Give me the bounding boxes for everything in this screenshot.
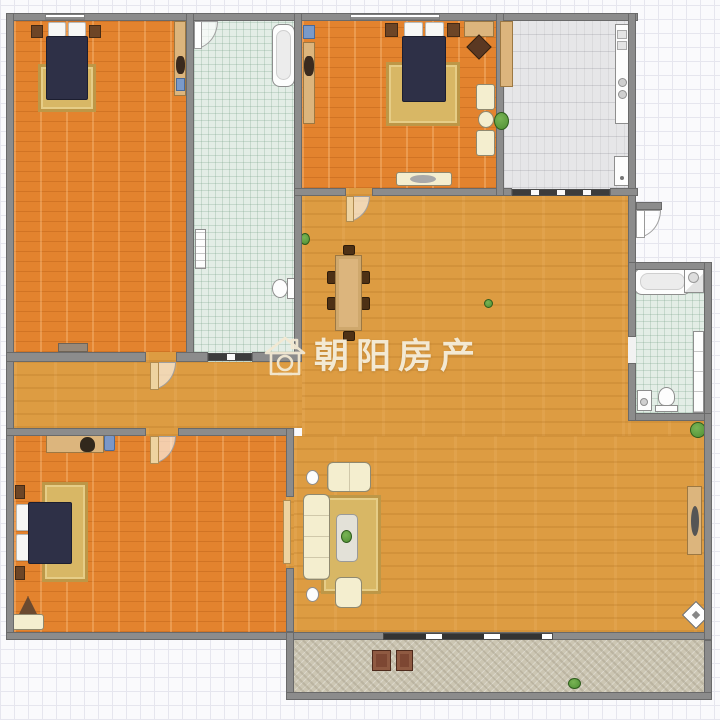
door-leaf-bedroom3-living [283, 500, 291, 564]
pillow-bedroom2-a [404, 22, 423, 37]
room-kitchen [504, 21, 628, 188]
desk-bedroom3 [46, 433, 104, 453]
nightstand-bedroom3-b [15, 566, 25, 580]
balcony-chair-a [372, 650, 391, 671]
door-leaf-bedroom2 [346, 196, 354, 222]
wall-balcony-right [704, 640, 712, 700]
room-balcony [294, 640, 704, 692]
wall-outer-top [6, 13, 638, 21]
dining-table [335, 255, 362, 331]
bag-bedroom2 [304, 56, 314, 76]
side-table-bedroom2 [478, 111, 494, 128]
wall-bedroom2-bottom-a [294, 188, 346, 196]
burner-kitchen-a [618, 78, 627, 87]
doorway-bedroom3 [146, 428, 178, 436]
toilet-bowl-bathroom2 [658, 387, 675, 406]
watermark-text: 朝阳房产 [314, 337, 482, 377]
door-leaf-bedroom3 [150, 436, 159, 464]
lamp-living-a [306, 470, 319, 485]
sink-basin-bathroom2 [688, 272, 699, 283]
nightstand-bedroom1-a [31, 25, 43, 38]
doorway-bedroom1 [146, 352, 176, 362]
plant-coffee-table [341, 530, 352, 543]
box-bedroom1 [176, 78, 185, 91]
cabinet-kitchen [500, 21, 513, 87]
sink-kitchen-a [617, 30, 627, 39]
dining-chair-right-b [361, 297, 370, 310]
window-bedroom1 [45, 14, 85, 20]
fridge-kitchen [614, 156, 629, 186]
wall-bath2-right [704, 262, 712, 420]
bag-bedroom1 [176, 56, 185, 74]
counter-kitchen [615, 24, 629, 124]
floor-plan: 朝阳房产 [0, 0, 720, 720]
wall-bedroom3-top-a [6, 428, 146, 436]
lamp-living-b [306, 587, 319, 602]
wall-kitchen-right [628, 13, 636, 266]
watermark: 朝阳房产 [264, 335, 482, 379]
balcony-plant [568, 678, 581, 689]
bed-bedroom1 [46, 36, 88, 100]
computer-bedroom3 [104, 435, 115, 451]
pillow-bedroom2-b [425, 22, 444, 37]
wall-bedroom3-top-b [178, 428, 294, 436]
nightstand-bedroom2-a [385, 23, 398, 37]
nightstand-bedroom1-b [89, 25, 101, 38]
wall-outer-left [6, 13, 14, 640]
plant-bedroom2 [494, 112, 509, 130]
wall-bath2-top [628, 262, 712, 270]
wall-living-right [704, 413, 712, 640]
dining-chair-right-a [361, 271, 370, 284]
dresser-bedroom3 [12, 614, 44, 630]
bed-bedroom3 [28, 502, 72, 564]
radiator-bathroom1 [195, 229, 206, 269]
fridge-dot-kitchen [620, 176, 624, 180]
nightstand-bedroom2-b [447, 23, 460, 37]
pillow-bedroom1-b [68, 22, 86, 37]
wall-kitchen-bottom [610, 188, 638, 196]
wall-balcony-left [286, 632, 294, 700]
wardrobe-bedroom2 [303, 42, 315, 124]
dresser-tray-bedroom2 [410, 175, 436, 183]
dresser-bedroom1 [58, 343, 88, 352]
wall-bedroom1-right [186, 13, 194, 362]
toilet-tank-bathroom2 [655, 405, 678, 412]
loveseat-living [327, 462, 371, 492]
toilet-bowl-bathroom1 [272, 279, 288, 298]
armchair-living [335, 577, 362, 608]
wall-mid-b [176, 352, 208, 362]
armchair-bedroom2-a [476, 84, 495, 110]
dining-chair-top [343, 245, 355, 255]
aquarium-bedroom2 [303, 25, 315, 39]
armchair-bedroom2-b [476, 130, 495, 156]
cabinet-bathroom2 [693, 331, 704, 413]
desk-chair-bedroom3 [80, 437, 95, 452]
washer-door-bathroom2 [640, 398, 648, 406]
nightstand-bedroom3-a [15, 485, 25, 499]
wall-bath2-left-b [628, 363, 636, 421]
sliding-door-bathroom1 [208, 353, 252, 361]
wall-bedroom3-right-a [286, 428, 294, 497]
wall-mid-a [6, 352, 146, 362]
sliding-door-kitchen [512, 189, 610, 196]
sink-kitchen-b [617, 41, 627, 50]
wall-bedroom3-right-b [286, 568, 294, 632]
wall-balcony-bottom [286, 692, 712, 700]
wall-bedroom2-bottom-b [372, 188, 512, 196]
doorway-bedroom2 [346, 188, 372, 196]
door-leaf-bedroom1 [150, 362, 159, 390]
watermark-house-icon [264, 336, 306, 378]
console-tray-living [691, 506, 699, 536]
plant-living-center [484, 299, 493, 308]
sliding-door-balcony [383, 633, 553, 640]
wall-outer-bottom [6, 632, 712, 640]
bathtub-basin-bathroom2 [640, 273, 685, 290]
pillow-bedroom1-a [48, 22, 66, 37]
door-leaf-bathroom1 [194, 21, 202, 49]
balcony-chair-b [396, 650, 413, 671]
bed-bedroom2 [402, 36, 446, 102]
wall-bath2-bottom [628, 413, 712, 421]
window-bedroom2 [350, 14, 440, 20]
wall-bath2-left-a [628, 262, 636, 337]
doorway-bathroom2 [628, 337, 636, 363]
burner-kitchen-b [618, 90, 627, 99]
wall-entry-stub [636, 202, 662, 210]
sofa-living [303, 494, 330, 580]
bathtub-basin-bathroom1 [276, 30, 291, 80]
door-leaf-entry [636, 210, 645, 238]
